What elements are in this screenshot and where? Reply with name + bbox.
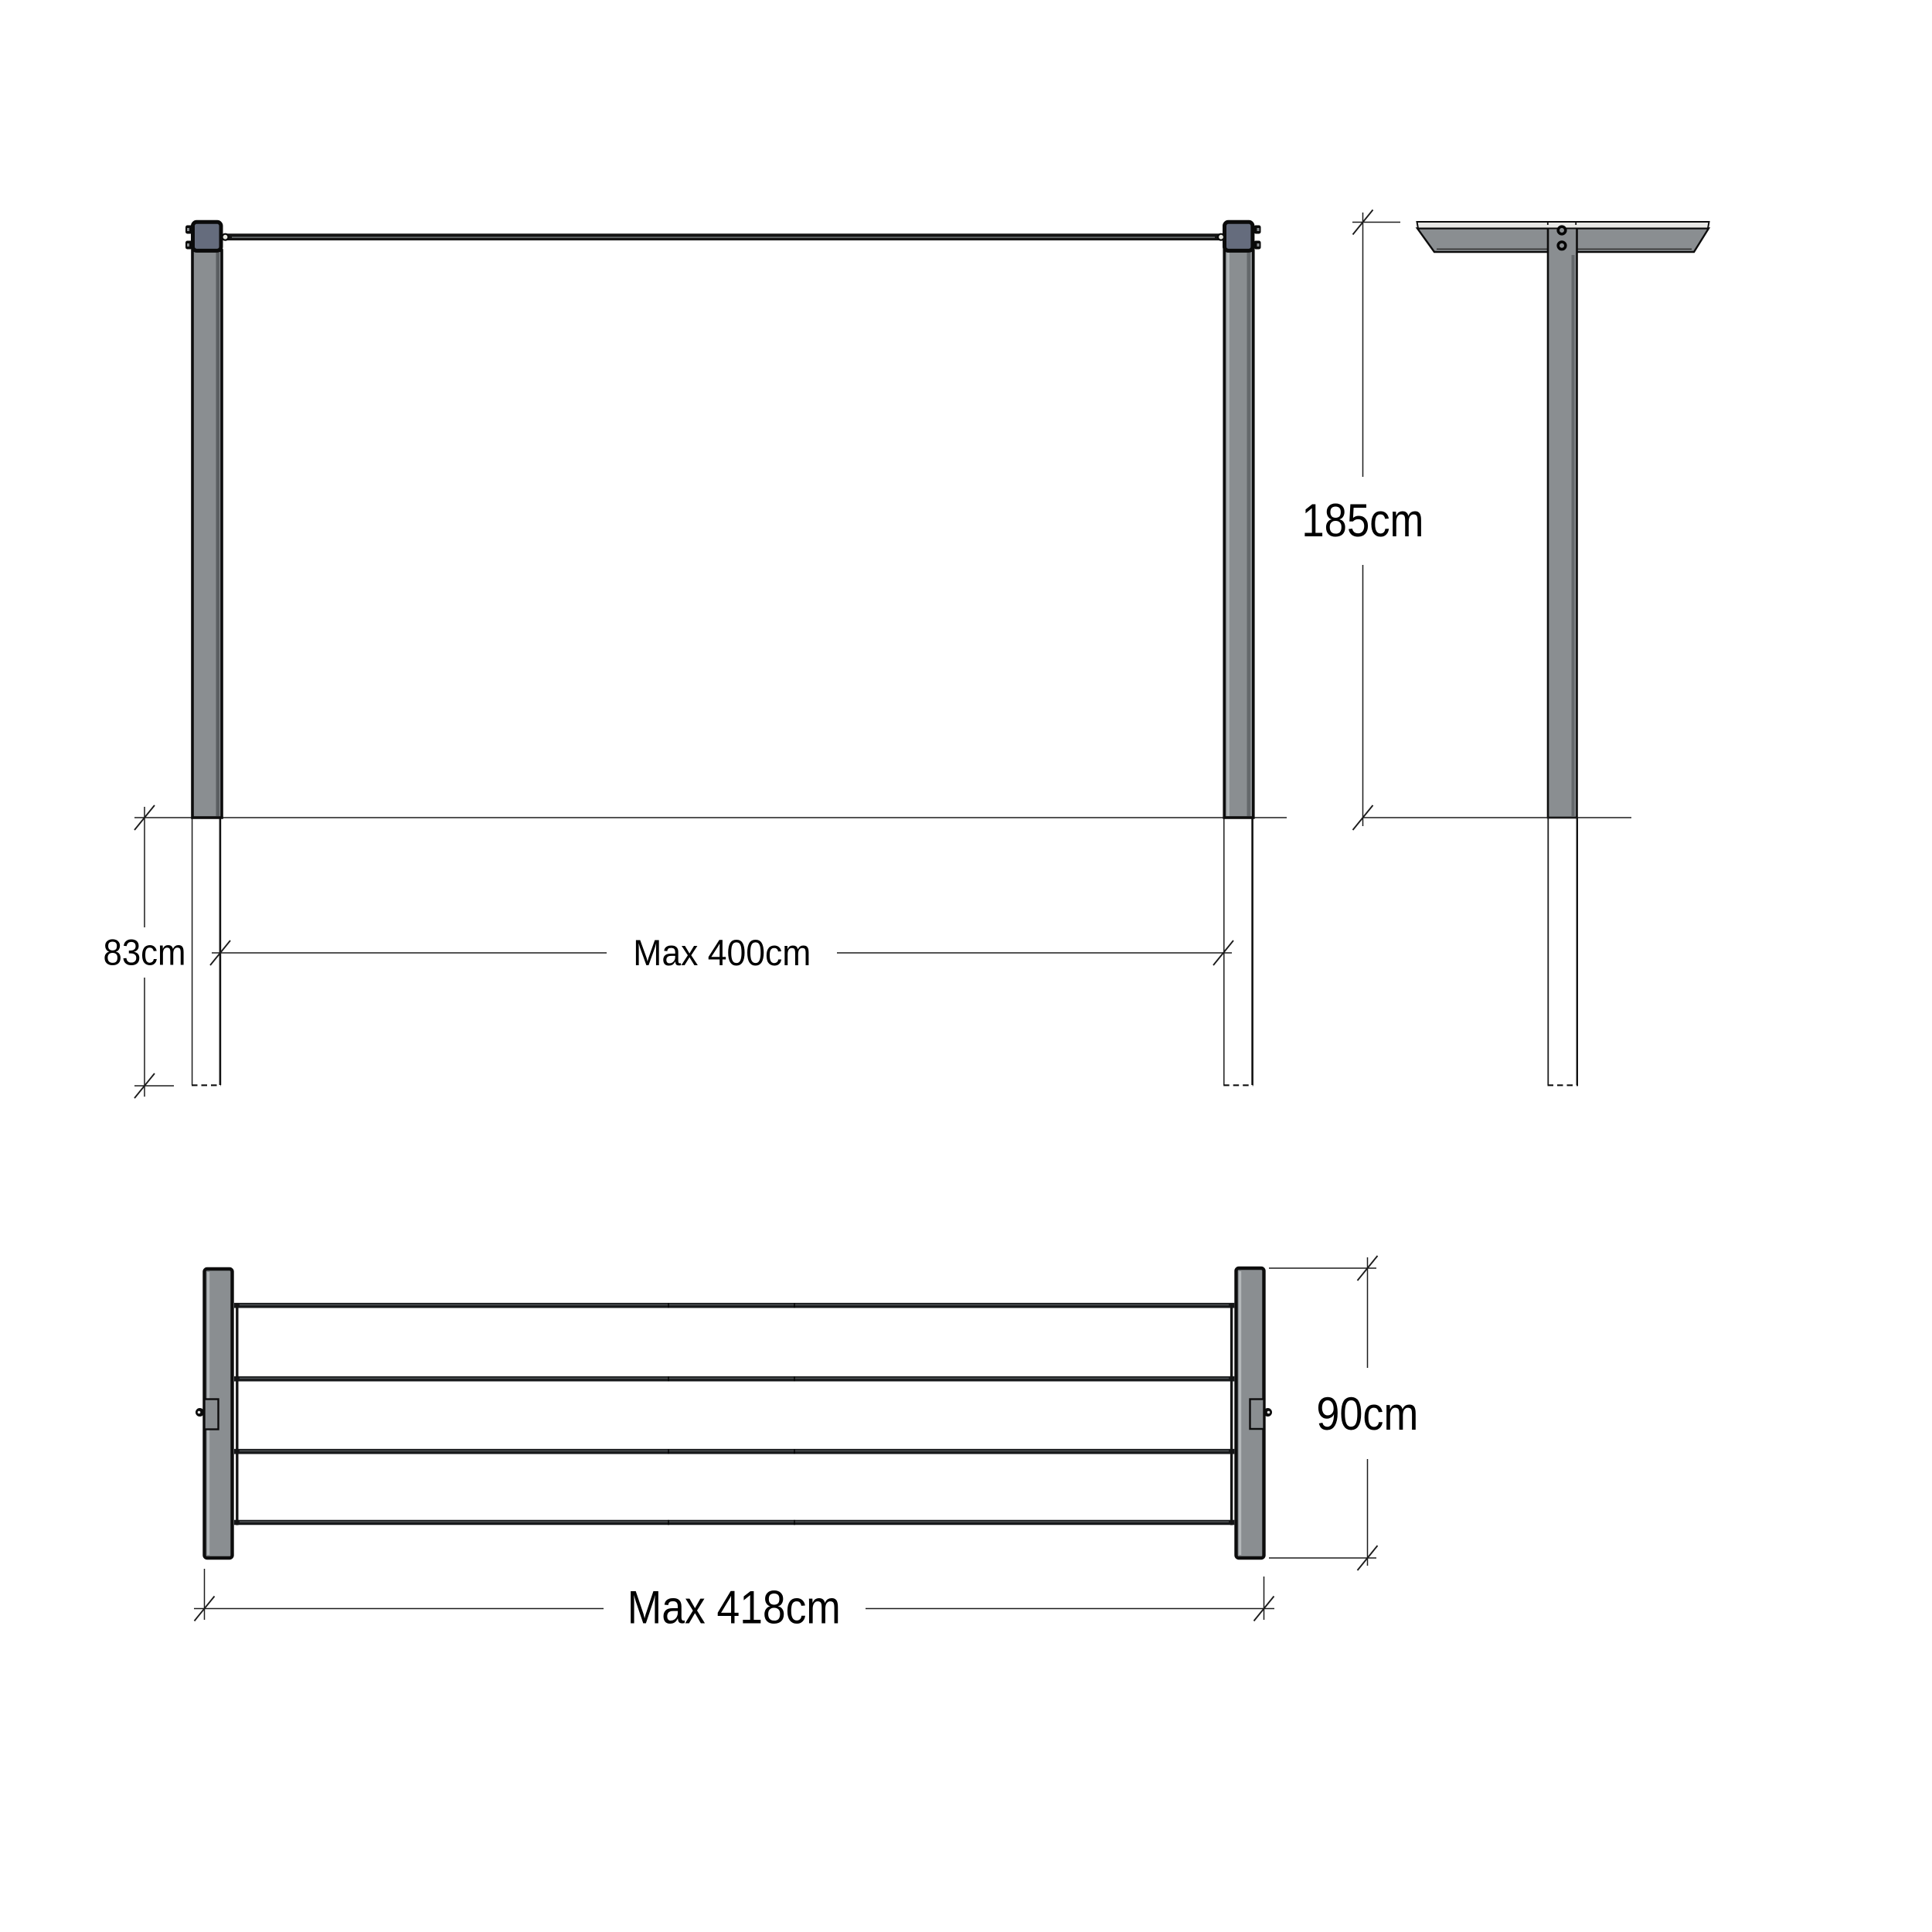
svg-text:83cm: 83cm bbox=[104, 932, 186, 973]
svg-text:90cm: 90cm bbox=[1316, 1388, 1418, 1440]
svg-text:Max 418cm: Max 418cm bbox=[628, 1582, 841, 1634]
svg-text:185cm: 185cm bbox=[1301, 495, 1423, 546]
svg-text:Max 400cm: Max 400cm bbox=[633, 932, 811, 973]
